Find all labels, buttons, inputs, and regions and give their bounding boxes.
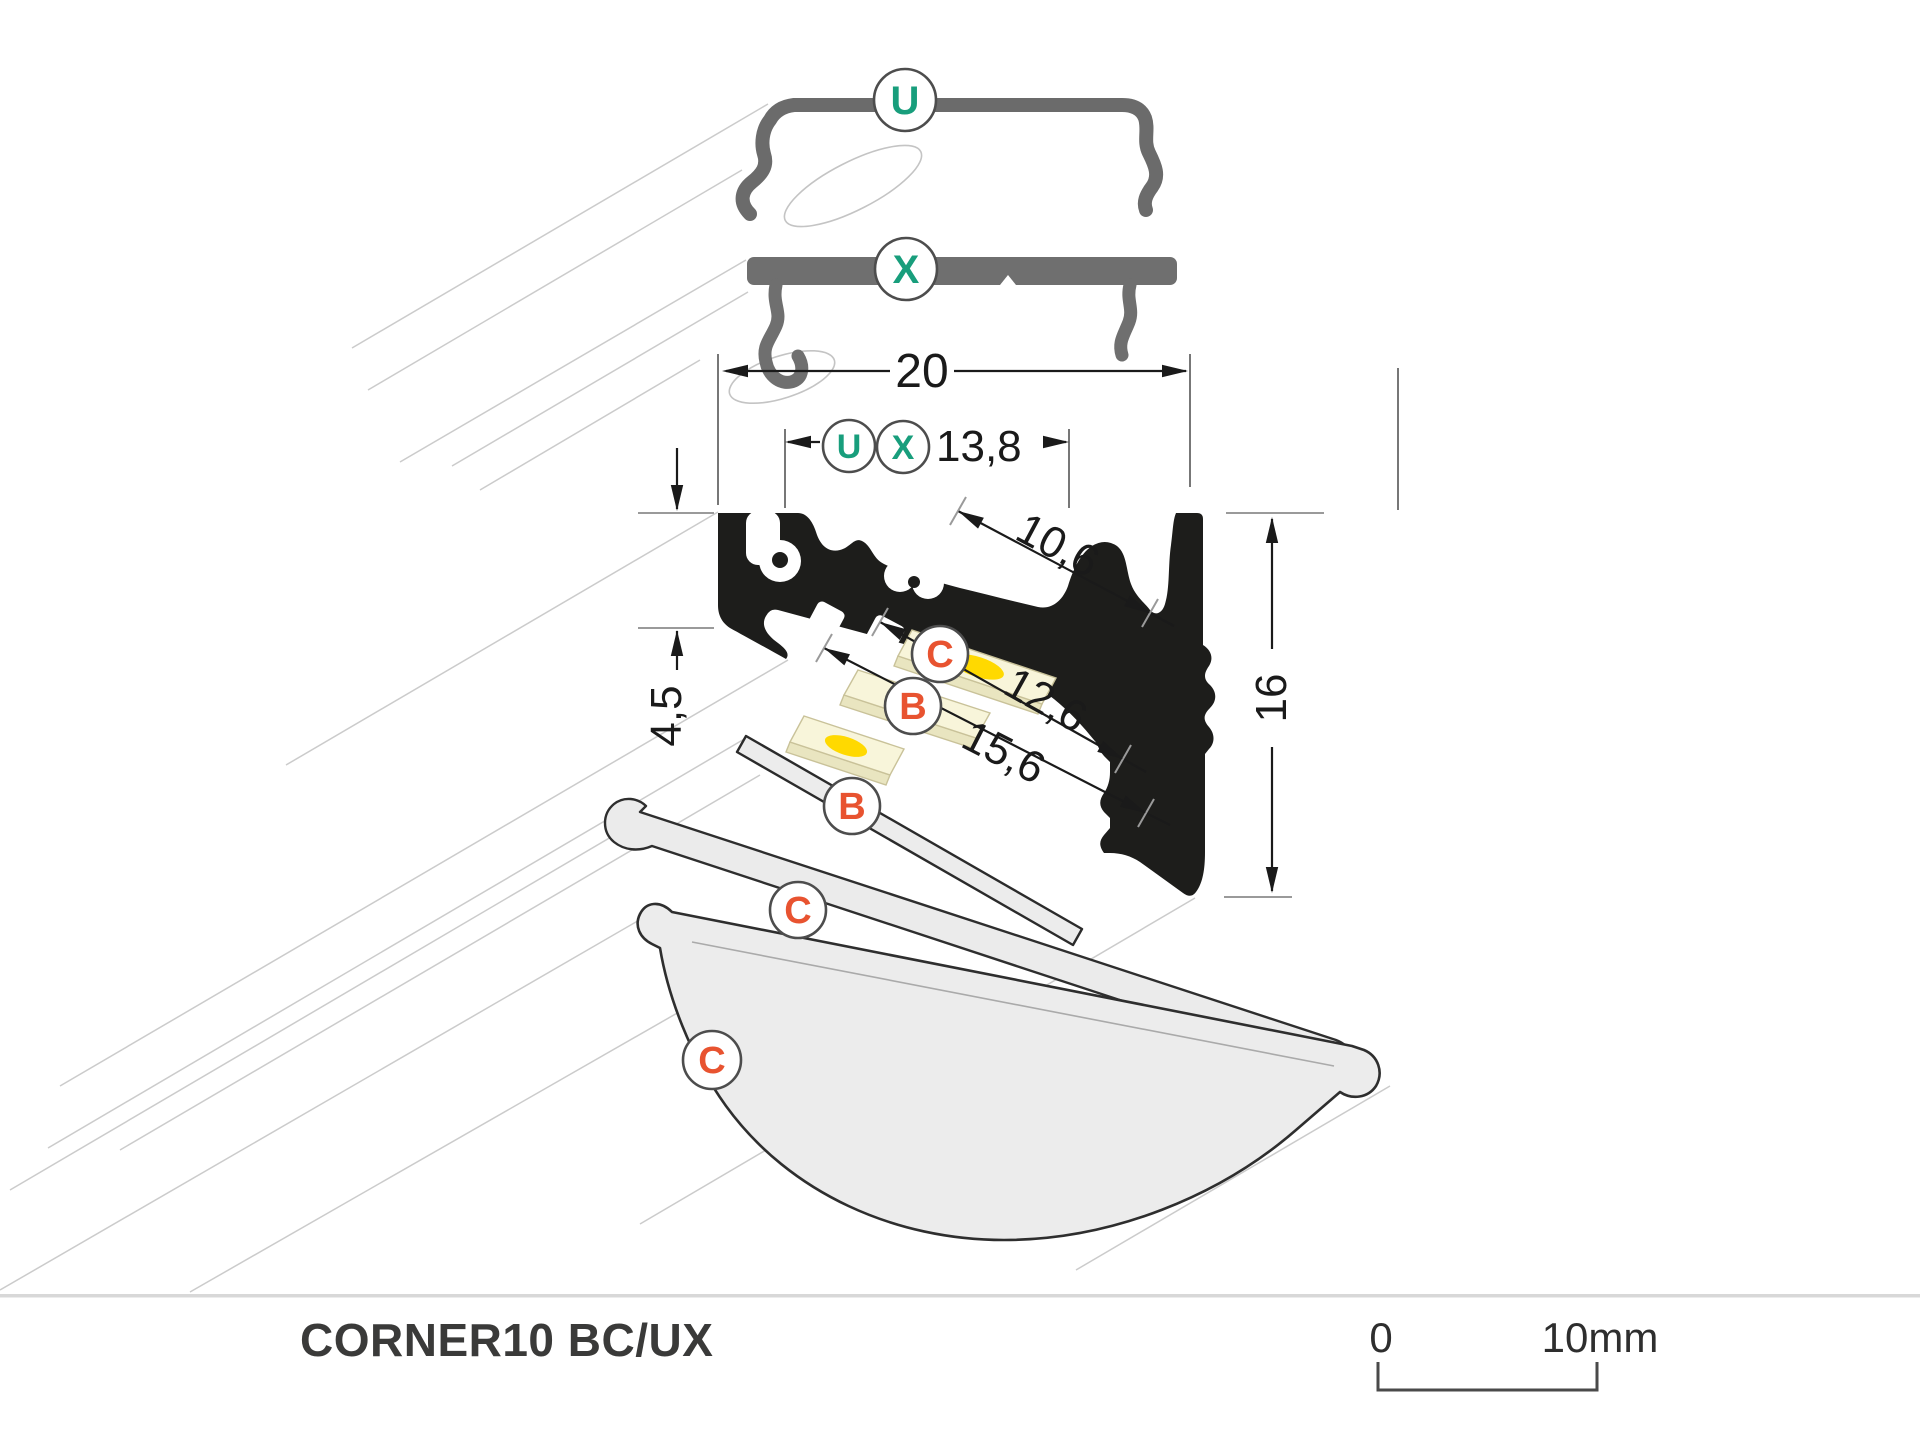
svg-text:C: C <box>698 1040 725 1082</box>
marker-c-strip: C <box>912 626 968 682</box>
main-profile-cross-section <box>718 511 1215 896</box>
scale-ten-label: 10mm <box>1542 1314 1659 1361</box>
dimension-total-height: 16 <box>1224 513 1324 897</box>
svg-text:C: C <box>784 890 811 932</box>
profile-drawing-canvas: 20 13,8 10,6 12,6 15,6 <box>0 0 1920 1440</box>
footer: CORNER10 BC/UX 0 10mm <box>0 1294 1920 1390</box>
marker-c-angular-cover: C <box>770 882 826 938</box>
marker-u-cover-top: U <box>874 69 936 131</box>
svg-text:X: X <box>892 429 915 467</box>
marker-c-dome-cover: C <box>683 1031 741 1089</box>
technical-drawing-page: 20 13,8 10,6 12,6 15,6 <box>0 0 1920 1440</box>
marker-x-bracket-top: X <box>875 238 937 300</box>
svg-text:X: X <box>893 248 920 292</box>
svg-text:B: B <box>899 686 926 728</box>
scale-bar: 0 10mm <box>1369 1314 1658 1390</box>
marker-b-strip: B <box>885 678 941 734</box>
footer-divider <box>0 1294 1920 1298</box>
dim-label-total-height: 16 <box>1247 674 1296 723</box>
marker-x-dim: X <box>877 421 929 473</box>
marker-u-dim: U <box>823 420 875 472</box>
svg-text:U: U <box>891 79 920 123</box>
svg-text:B: B <box>838 786 865 828</box>
scale-zero-label: 0 <box>1369 1314 1392 1361</box>
dim-label-inner-width: 13,8 <box>936 422 1022 471</box>
svg-text:U: U <box>837 428 862 466</box>
scale-bar-bracket <box>1378 1362 1597 1390</box>
dim-label-total-width: 20 <box>895 345 948 398</box>
ghost-slot-oval-top <box>774 130 931 242</box>
dim-label-back-height: 4,5 <box>642 685 691 746</box>
marker-b-flat-cover: B <box>824 778 880 834</box>
page-title: CORNER10 BC/UX <box>300 1314 713 1366</box>
svg-text:C: C <box>926 634 953 676</box>
dimension-back-height: 4,5 <box>638 448 714 747</box>
